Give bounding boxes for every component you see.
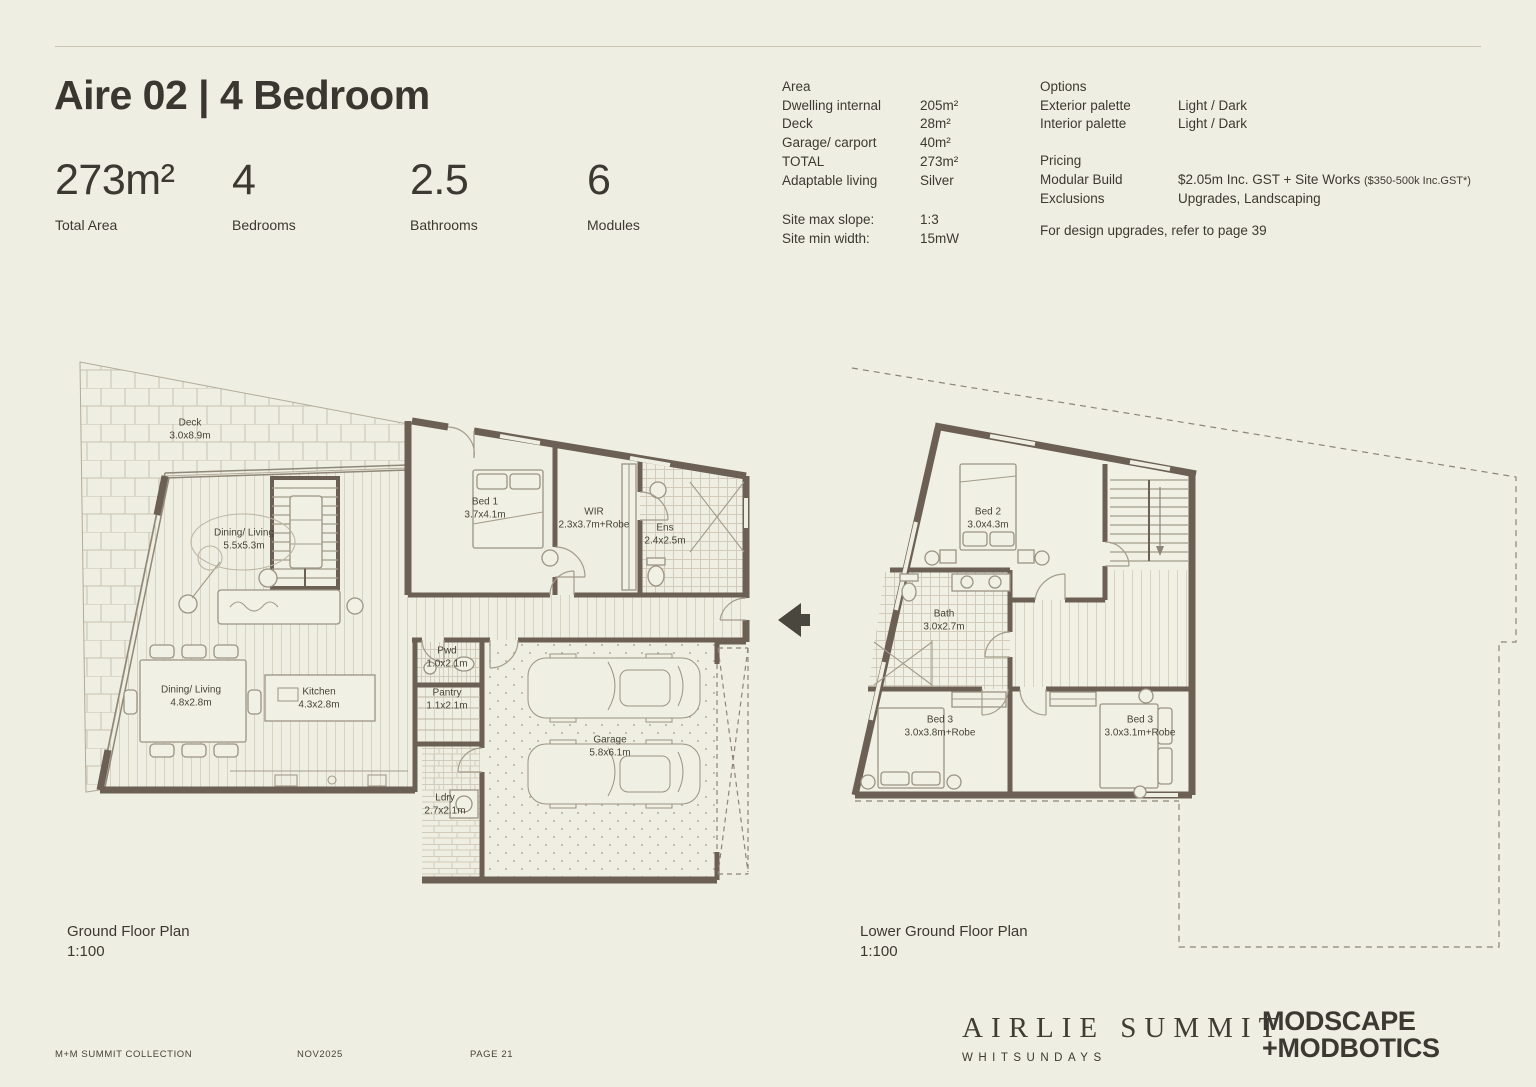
spec-area-heading: Area xyxy=(782,78,958,97)
room-label-ldry: Ldry2.7x2.1m xyxy=(424,793,465,818)
spec-row: Adaptable livingSilver xyxy=(782,172,958,191)
spec-row: Site min width:15mW xyxy=(782,230,959,249)
room-label-bath: Bath3.0x2.7m xyxy=(923,609,964,634)
room-label-garage: Garage5.8x6.1m xyxy=(589,735,630,760)
stat-total-area: 273m² Total Area xyxy=(55,156,174,233)
arrow-left-icon xyxy=(774,601,812,639)
ground-floor-plan: Deck3.0x8.9m Dining/ Living5.5x5.3m Bed … xyxy=(70,352,750,912)
spec-row: Interior paletteLight / Dark xyxy=(1040,115,1247,134)
driveway-dashed xyxy=(717,648,748,874)
car xyxy=(528,654,700,722)
spec-pricing-block: Pricing Modular Build$2.05m Inc. GST + S… xyxy=(1040,152,1471,209)
spec-options-block: Options Exterior paletteLight / Dark Int… xyxy=(1040,78,1247,134)
spec-row: TOTAL273m² xyxy=(782,153,958,172)
stat-label: Total Area xyxy=(55,217,174,233)
spec-site-block: Site max slope:1:3 Site min width:15mW xyxy=(782,211,959,248)
spec-row: Modular Build$2.05m Inc. GST + Site Work… xyxy=(1040,171,1471,191)
room-label-dining-living-lower: Dining/ Living4.8x2.8m xyxy=(161,685,221,710)
room-label-kitchen: Kitchen4.3x2.8m xyxy=(298,687,339,712)
stat-value: 273m² xyxy=(55,156,174,205)
room-label-bed3-left: Bed 33.0x3.8m+Robe xyxy=(905,715,976,740)
footer-collection: M+M SUMMIT COLLECTION xyxy=(55,1049,192,1060)
room-label-ens: Ens2.4x2.5m xyxy=(644,523,685,548)
stat-value: 4 xyxy=(232,156,296,205)
stat-label: Bathrooms xyxy=(410,217,478,233)
spec-row: ExclusionsUpgrades, Landscaping xyxy=(1040,190,1471,209)
lower-ground-floor-plan-drawing xyxy=(840,352,1530,962)
spec-row: Dwelling internal205m² xyxy=(782,97,958,116)
footer-page: PAGE 21 xyxy=(470,1049,513,1060)
ground-plan-caption: Ground Floor Plan 1:100 xyxy=(67,922,190,962)
room-label-deck: Deck3.0x8.9m xyxy=(169,418,210,443)
modscape-modbotics-logo: MODSCAPE +MODBOTICS xyxy=(1262,1008,1440,1062)
room-label-wir: WIR2.3x3.7m+Robe xyxy=(559,507,630,532)
spec-row: Site max slope:1:3 xyxy=(782,211,959,230)
room-label-pwd: Pwd1.0x2.1m xyxy=(426,646,467,671)
spec-row: Exterior paletteLight / Dark xyxy=(1040,97,1247,116)
room-label-dining-living-upper: Dining/ Living5.5x5.3m xyxy=(214,528,274,553)
stat-modules: 6 Modules xyxy=(587,156,640,233)
lower-ground-floor-plan: Bed 23.0x4.3m Bath3.0x2.7m Bed 33.0x3.8m… xyxy=(840,352,1530,962)
stat-label: Modules xyxy=(587,217,640,233)
stat-label: Bedrooms xyxy=(232,217,296,233)
footer-date: NOV2025 xyxy=(297,1049,343,1060)
room-label-bed1: Bed 13.7x4.1m xyxy=(464,497,505,522)
stat-bedrooms: 4 Bedrooms xyxy=(232,156,296,233)
airlie-summit-logo: AIRLIE SUMMIT WHITSUNDAYS xyxy=(962,1012,1284,1064)
stat-value: 6 xyxy=(587,156,640,205)
brochure-page: { "colors": { "background": "#efeee2", "… xyxy=(0,0,1536,1087)
spec-row: Deck28m² xyxy=(782,115,958,134)
room-label-bed3-right: Bed 33.0x3.1m+Robe xyxy=(1105,715,1176,740)
spec-area-block: Area Dwelling internal205m² Deck28m² Gar… xyxy=(782,78,958,190)
stat-value: 2.5 xyxy=(410,156,478,205)
spec-pricing-heading: Pricing xyxy=(1040,152,1471,171)
spec-row: Garage/ carport40m² xyxy=(782,134,958,153)
room-label-pantry: Pantry1.1x2.1m xyxy=(426,688,467,713)
room-label-bed2: Bed 23.0x4.3m xyxy=(967,507,1008,532)
page-title: Aire 02 | 4 Bedroom xyxy=(54,72,430,119)
spec-upgrade-note: For design upgrades, refer to page 39 xyxy=(1040,222,1267,241)
stat-bathrooms: 2.5 Bathrooms xyxy=(410,156,478,233)
header-divider xyxy=(55,46,1481,47)
spec-options-heading: Options xyxy=(1040,78,1247,97)
lower-plan-caption: Lower Ground Floor Plan 1:100 xyxy=(860,922,1028,962)
